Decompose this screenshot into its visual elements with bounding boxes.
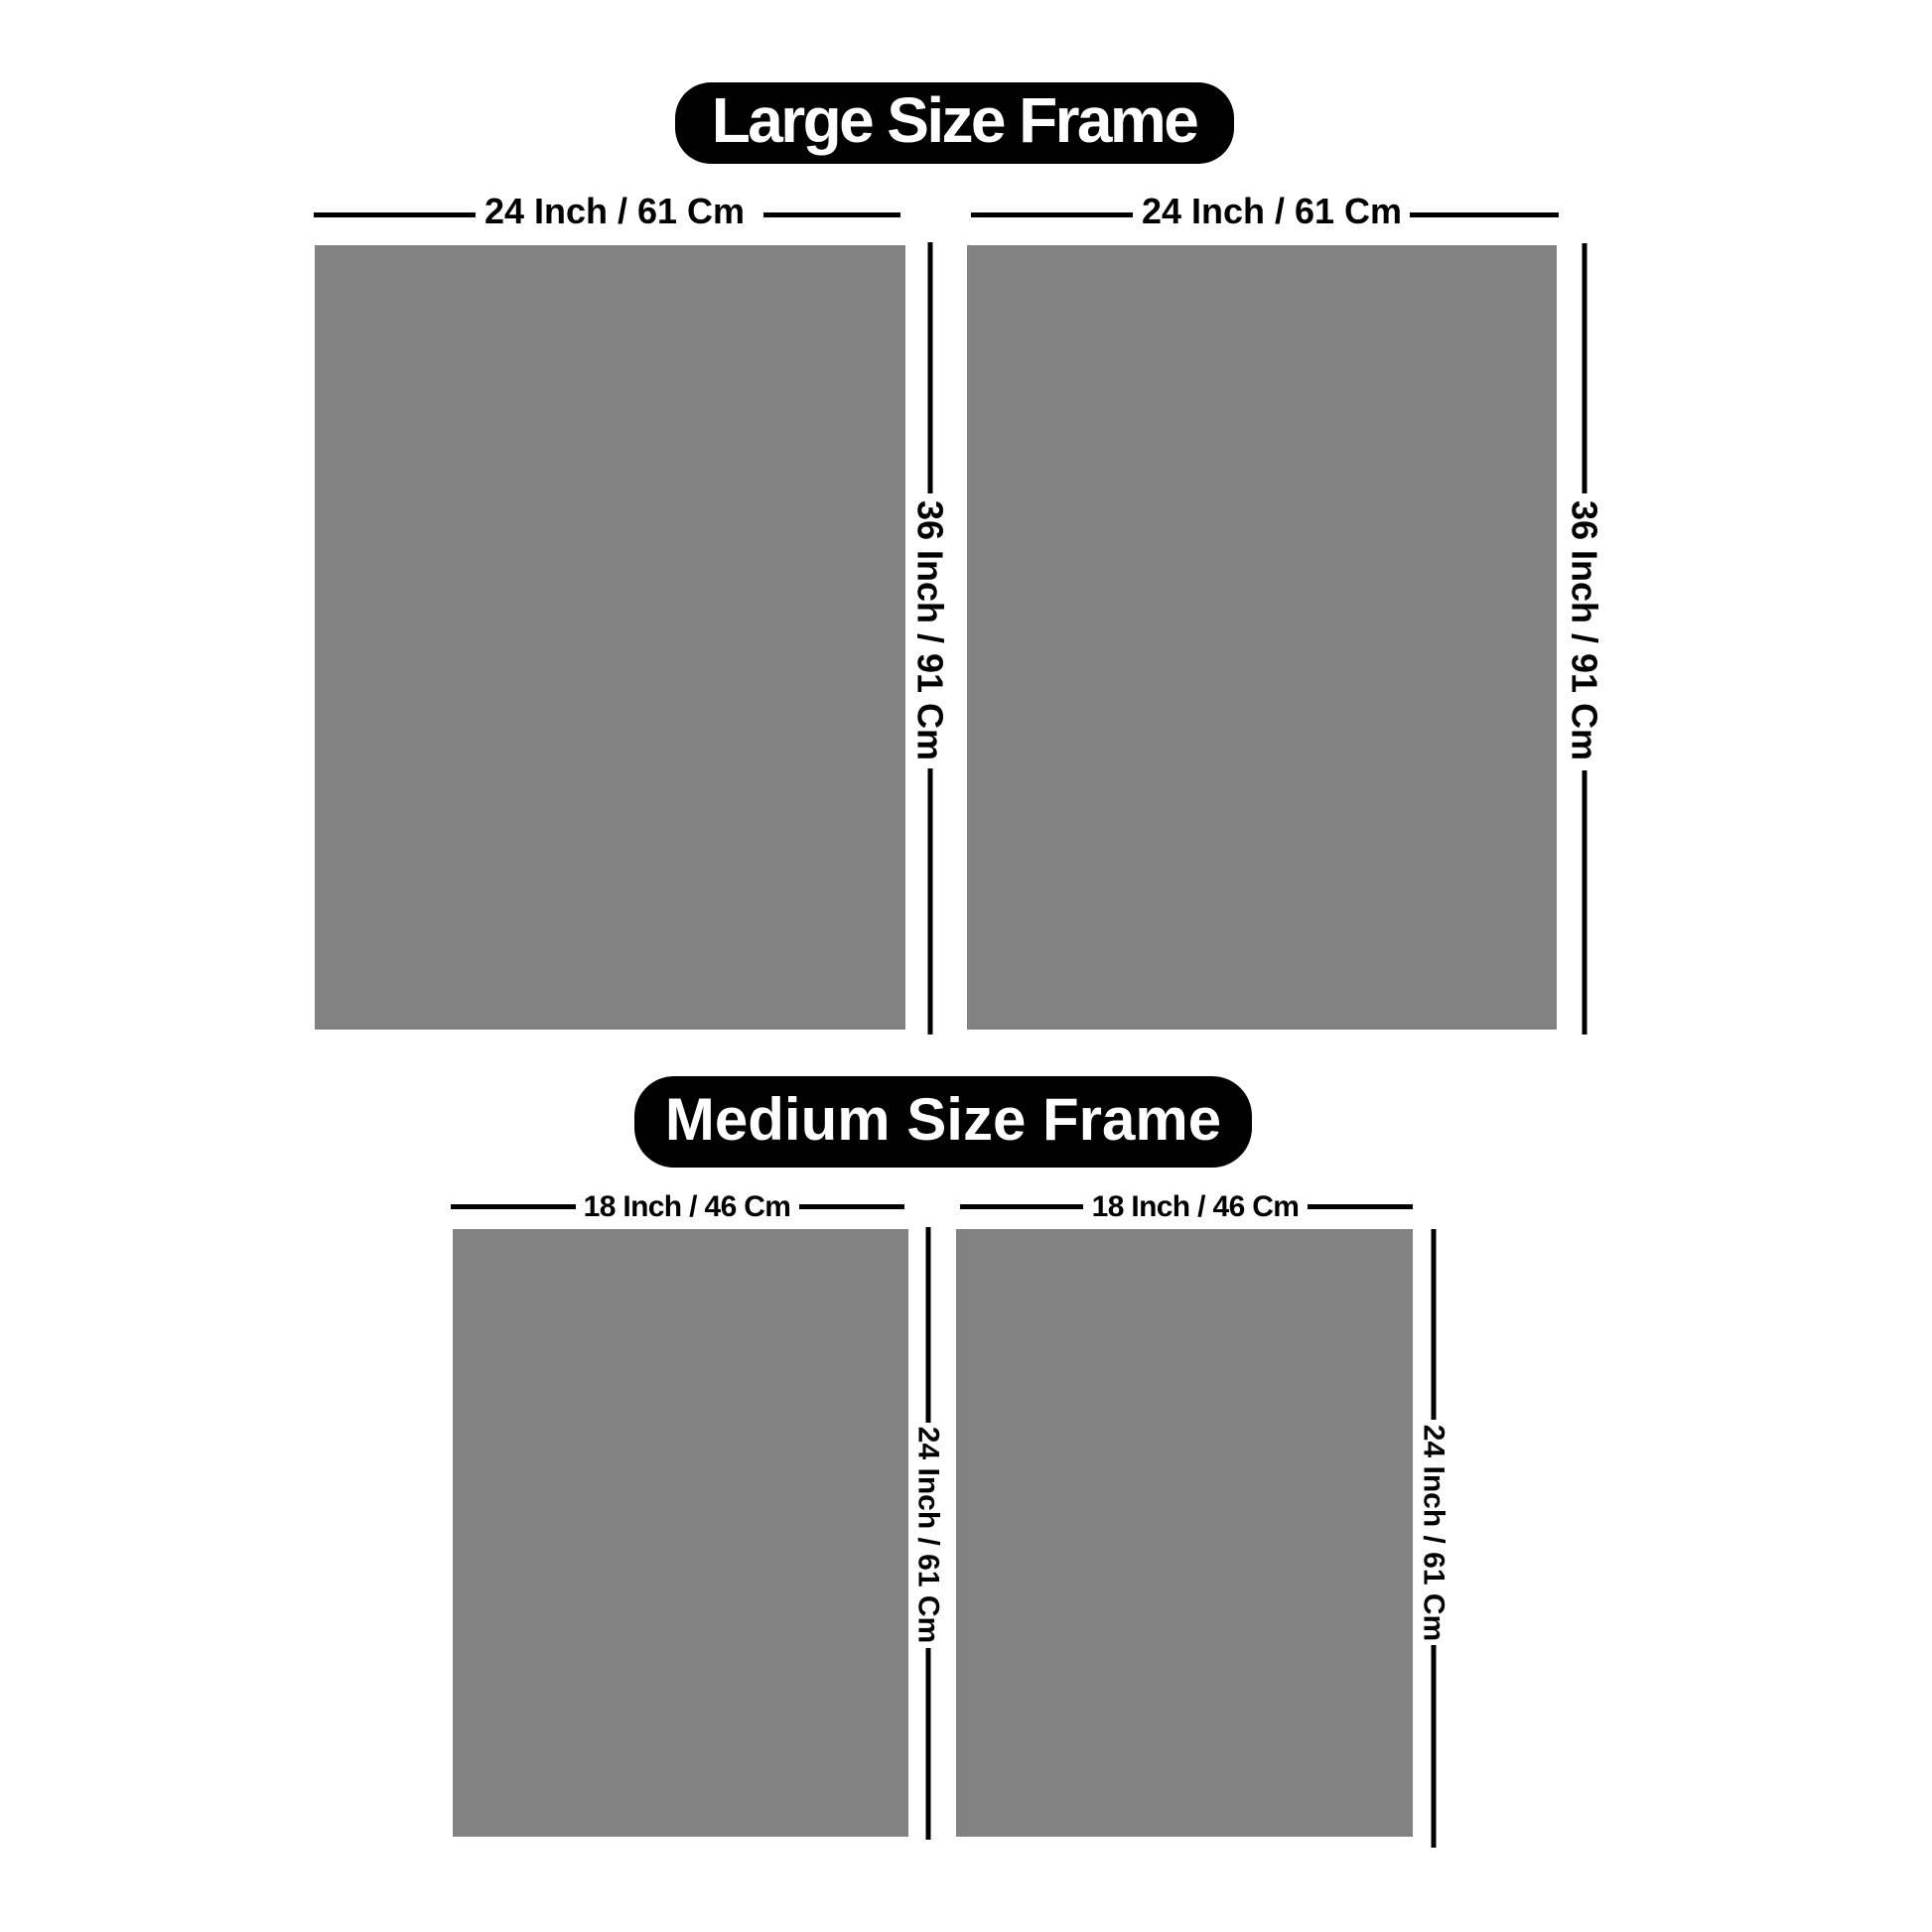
svg-text:24 Inch / 61 Cm: 24 Inch / 61 Cm (1418, 1425, 1450, 1641)
svg-text:Medium Size Frame: Medium Size Frame (665, 1086, 1221, 1153)
svg-text:18 Inch / 46 Cm: 18 Inch / 46 Cm (584, 1190, 791, 1223)
svg-text:18 Inch / 46 Cm: 18 Inch / 46 Cm (1092, 1190, 1300, 1223)
svg-text:24 Inch / 61 Cm: 24 Inch / 61 Cm (484, 191, 745, 231)
svg-text:36 Inch / 91 Cm: 36 Inch / 91 Cm (910, 500, 951, 760)
svg-text:24 Inch / 61 Cm: 24 Inch / 61 Cm (912, 1427, 945, 1643)
svg-text:Large Size Frame: Large Size Frame (712, 84, 1197, 156)
svg-text:24 Inch / 61 Cm: 24 Inch / 61 Cm (1142, 191, 1402, 231)
svg-text:36 Inch / 91 Cm: 36 Inch / 91 Cm (1565, 500, 1605, 760)
